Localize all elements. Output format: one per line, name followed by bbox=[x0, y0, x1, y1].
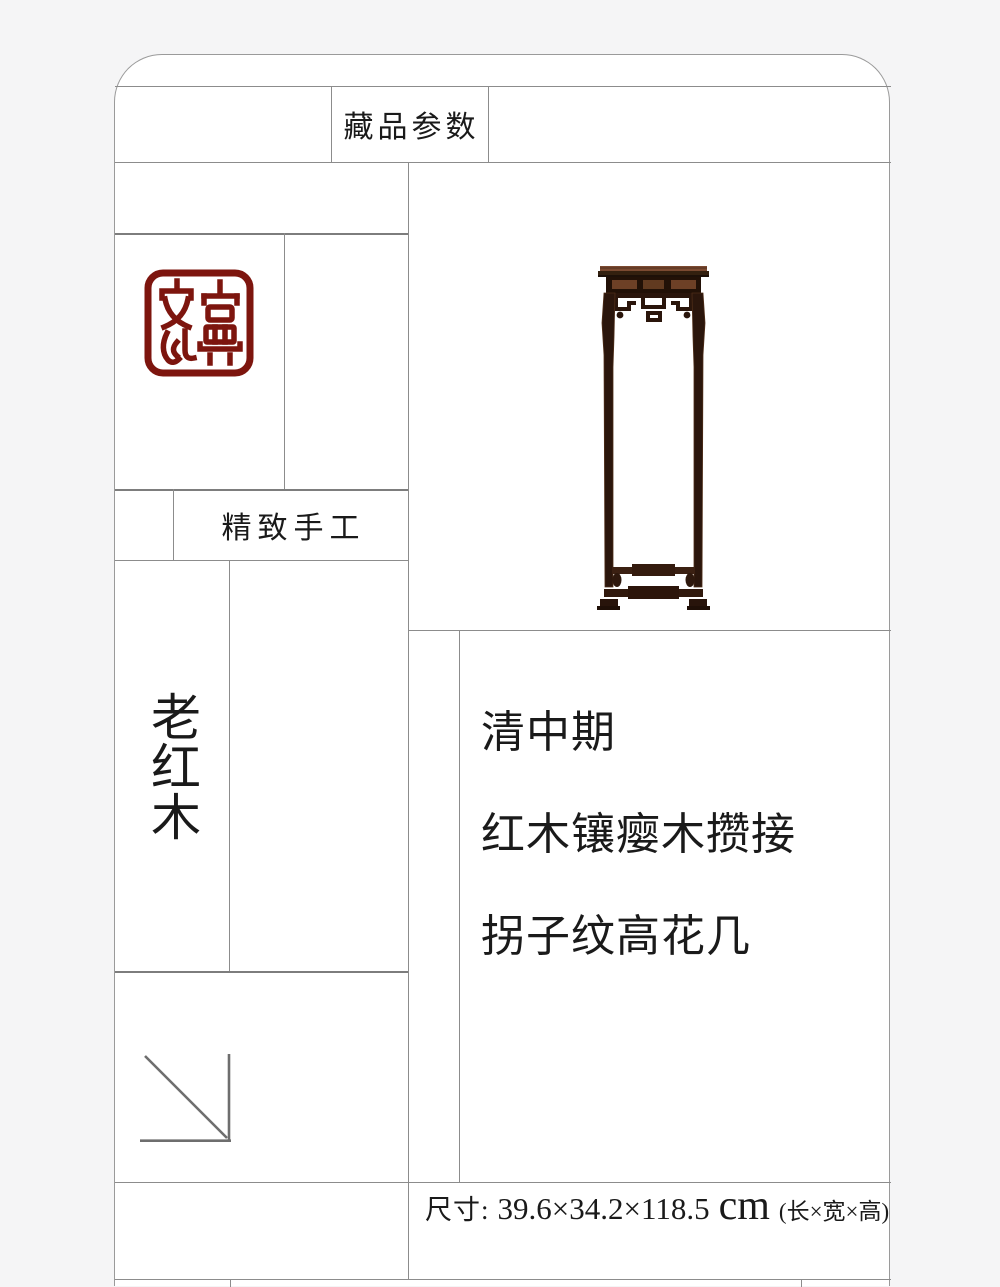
dimensions-row: 尺寸: 39.6×34.2×118.5 cm (长×宽×高) bbox=[408, 1182, 891, 1279]
product-description: 清中期 红木镶瘿木攒接 拐子纹高花几 bbox=[481, 682, 881, 988]
product-photo-flower-stand bbox=[596, 266, 711, 612]
product-era: 清中期 bbox=[481, 682, 881, 784]
grid-line bbox=[115, 971, 408, 973]
grid-line bbox=[408, 630, 891, 631]
material-label: 老红木 bbox=[115, 560, 229, 971]
grid-line bbox=[229, 560, 230, 971]
dimensions-label: 尺寸: bbox=[425, 1188, 490, 1227]
grid-line bbox=[115, 86, 891, 87]
grid-line bbox=[488, 86, 489, 162]
collection-params-title: 藏品参数 bbox=[331, 86, 488, 162]
brand-seal-icon bbox=[144, 269, 254, 377]
dimensions-unit: cm bbox=[719, 1182, 770, 1230]
diagonal-arrow-icon bbox=[140, 1049, 235, 1144]
grid-line bbox=[115, 162, 891, 163]
grid-line bbox=[408, 162, 409, 1280]
grid-line bbox=[115, 1279, 891, 1280]
page-background: 藏品参数 精致手工 老红木 bbox=[0, 0, 1000, 1286]
product-material: 红木镶瘿木攒接 bbox=[481, 784, 881, 886]
product-name: 拐子纹高花几 bbox=[481, 886, 881, 988]
craftsmanship-label: 精致手工 bbox=[173, 489, 408, 560]
grid-line bbox=[459, 630, 460, 1182]
grid-line bbox=[115, 233, 408, 235]
dimensions-note: (长×宽×高) bbox=[779, 1192, 889, 1226]
grid-line bbox=[284, 233, 285, 489]
product-spec-card: 藏品参数 精致手工 老红木 bbox=[114, 54, 890, 1286]
dimensions-value: 39.6×34.2×118.5 bbox=[498, 1191, 710, 1227]
